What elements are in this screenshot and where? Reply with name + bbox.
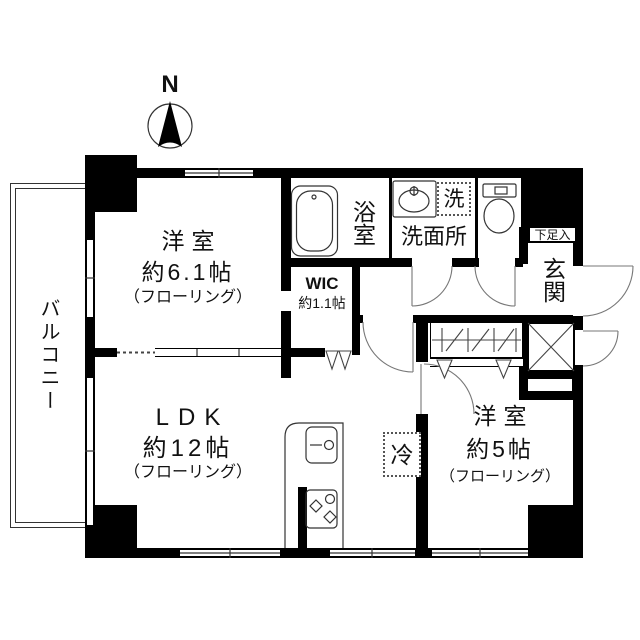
entrance-label: 玄関 [535,248,569,312]
ldk-name: LDK [108,404,268,432]
wic-bifold-door-icon [326,351,351,369]
ldk-size: 約12帖 [108,434,268,464]
balcony-label: バルコニー [31,268,65,443]
ldk-floor: （フローリング） [98,463,278,483]
wic-size: 約1.1帖 [289,294,355,311]
door-opening [363,315,413,323]
window [85,240,95,317]
wall [415,548,432,558]
north-label: N [152,72,188,98]
wall [95,348,117,357]
window [330,548,415,558]
wall [281,178,291,290]
sliding-partition [155,348,281,357]
shoebox-label: 下足入 [528,227,577,242]
wall [253,168,521,178]
bedroom61-size: 約6.1帖 [108,257,268,287]
wall [281,312,291,378]
wall [281,258,412,267]
service-door-arc [583,331,618,366]
floor-plan: N バルコニー 洋室 約6.1帖 （フローリング） 浴室 洗 洗面所 下足入 玄… [0,0,640,640]
wall-dotted-segment [117,348,155,357]
balcony-sliding-door [85,378,95,525]
bedroom61-floor: （フローリング） [98,288,278,308]
wall [85,168,95,240]
washroom-label: 洗面所 [389,223,479,251]
window [185,168,253,178]
wall [280,548,330,558]
fridge-label: 冷 [384,438,420,472]
window [180,548,280,558]
washbasin-icon [393,181,436,217]
hall-door-arc [363,322,413,372]
bathtub-icon [292,186,338,256]
wall [452,258,479,267]
window [432,548,528,558]
toilet-icon [483,184,516,233]
closet [430,322,523,358]
wall [85,317,95,378]
entrance-door-opening [573,266,583,316]
wall [416,315,428,362]
bedroom5-size: 約5帖 [430,434,570,464]
kitchen-sink-icon [306,427,337,463]
bedroom5-floor: （フローリング） [420,466,580,486]
bedroom5-name: 洋室 [430,402,570,430]
pipe-shaft-box [527,322,575,372]
kitchen-half-wall [298,487,307,548]
north-compass-icon [148,101,192,148]
wall [519,227,528,264]
wall [281,348,325,357]
toilet-door-arc [475,266,515,306]
wall [355,315,363,323]
entrance-door-arc [583,266,633,316]
washer-label: 洗 [438,183,470,215]
stove-icon [306,490,337,528]
wic-label: WIC [291,273,353,293]
meter-box-slot [527,378,573,392]
closet-door-track [430,358,523,367]
wall [521,168,583,228]
wall [85,548,180,558]
washroom-door-arc [412,266,452,306]
kitchen-counter-icon [285,423,343,548]
bath-label: 浴室 [346,192,378,254]
bedroom61-name: 洋室 [108,227,268,255]
